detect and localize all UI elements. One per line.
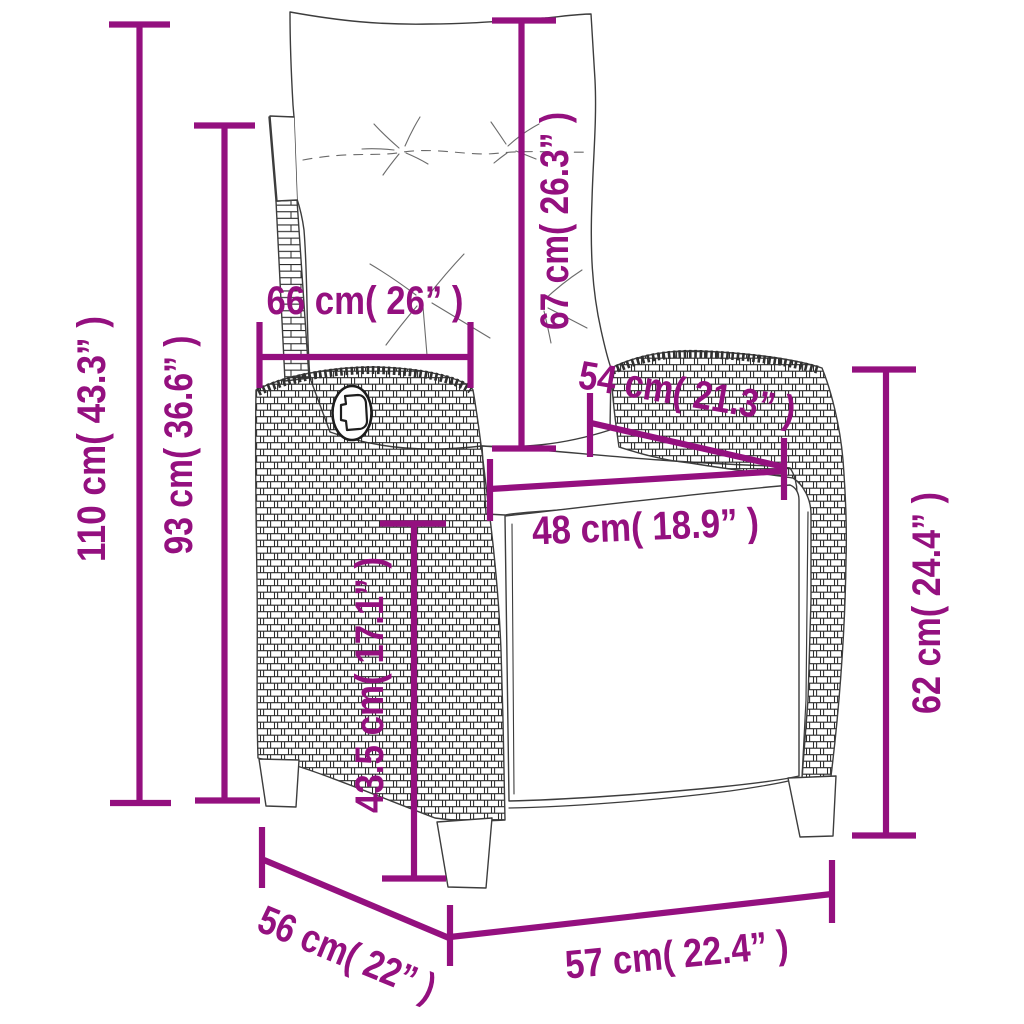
svg-text:62 cm( 24.4” ): 62 cm( 24.4” ) [905, 492, 949, 714]
svg-text:93 cm( 36.6” ): 93 cm( 36.6” ) [157, 336, 201, 555]
svg-text:43.5 cm( 17.1” ): 43.5 cm( 17.1” ) [348, 557, 392, 813]
svg-text:66 cm( 26” ): 66 cm( 26” ) [267, 279, 464, 323]
svg-text:48 cm( 18.9” ): 48 cm( 18.9” ) [531, 500, 760, 553]
svg-text:110 cm( 43.3” ): 110 cm( 43.3” ) [70, 316, 114, 562]
svg-text:67 cm( 26.3” ): 67 cm( 26.3” ) [533, 112, 577, 330]
